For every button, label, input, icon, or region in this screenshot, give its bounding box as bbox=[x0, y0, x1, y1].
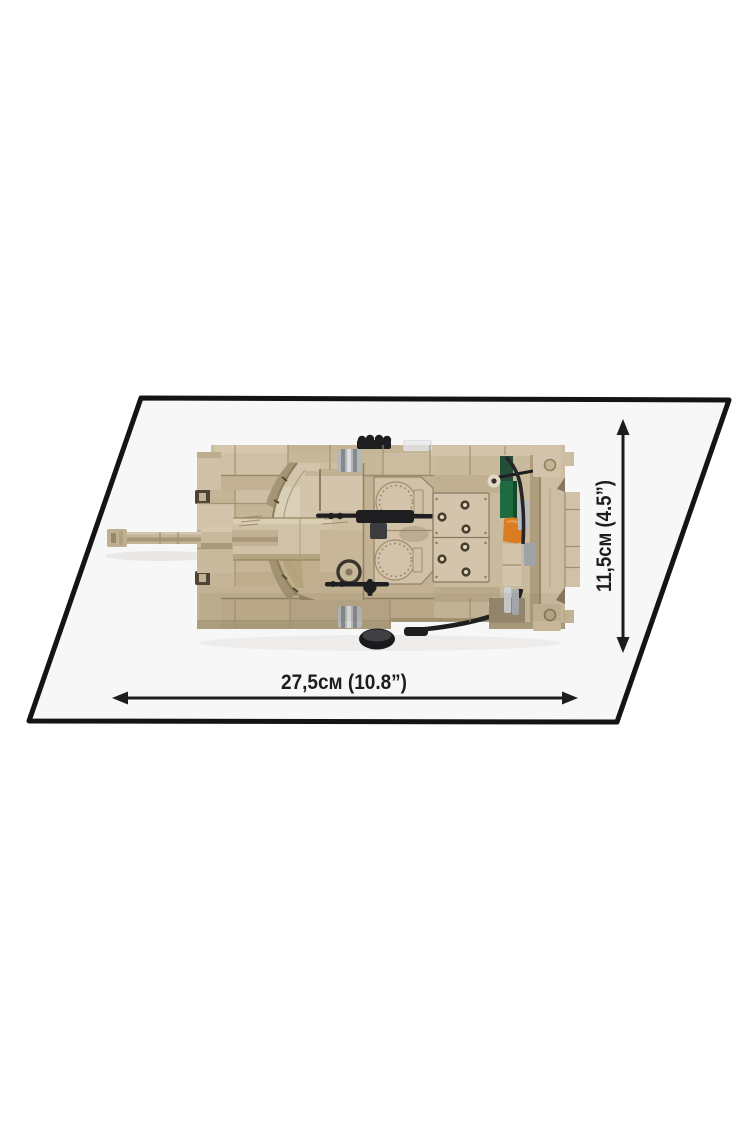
svg-text:27,5см (10.8”): 27,5см (10.8”) bbox=[281, 671, 407, 694]
svg-text:11,5см (4.5”): 11,5см (4.5”) bbox=[593, 480, 616, 592]
